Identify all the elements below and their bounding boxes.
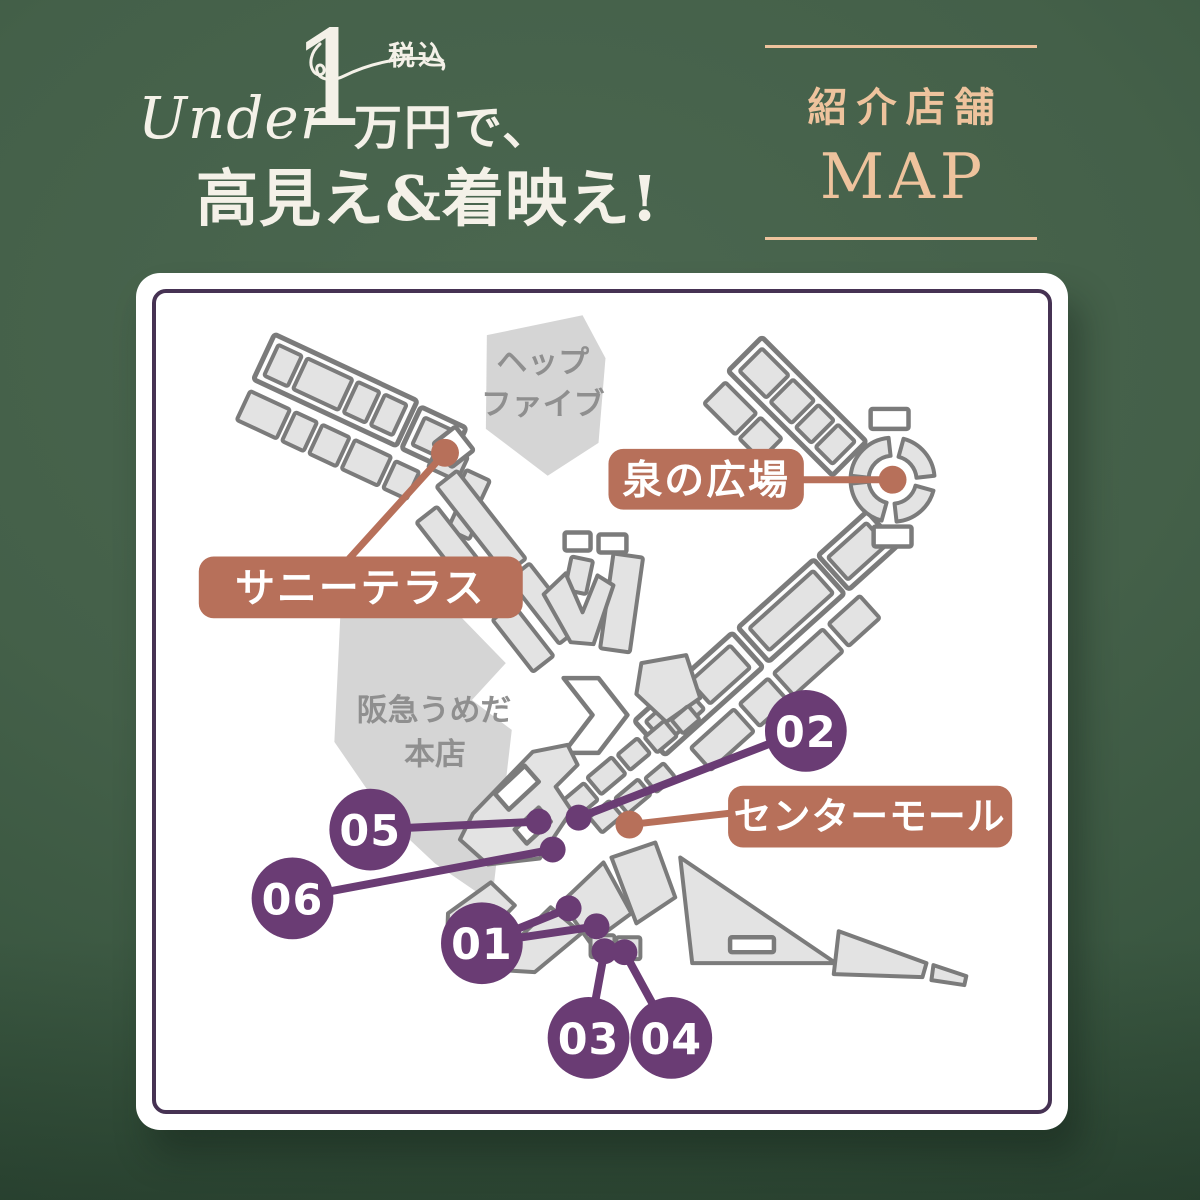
pin-06-number: 06	[262, 875, 324, 925]
page: { "title": { "under": "Under", "big_one"…	[0, 0, 1200, 1200]
sunny-terrace-dot	[431, 439, 459, 467]
izumi-plaza-label: 泉の広場	[622, 459, 789, 503]
umeda-underground-map: ヘップ ファイブ 阪急うめだ 本店	[136, 273, 1068, 1130]
tax-included-note: 税込	[388, 34, 448, 73]
pin-04-number: 04	[640, 1015, 702, 1065]
pin-01-number: 01	[451, 920, 513, 970]
center-mall-dot	[615, 811, 643, 839]
pin-05-number: 05	[339, 807, 401, 857]
hep-five-label-line2: ファイブ	[481, 386, 605, 421]
map-card: ヘップ ファイブ 阪急うめだ 本店	[136, 273, 1068, 1130]
intro-badge-map: MAP	[765, 140, 1037, 213]
pin-05: 05	[329, 789, 411, 871]
intro-map-badge: 紹介店舗 MAP	[765, 45, 1037, 240]
map-south-cluster	[447, 843, 966, 986]
pin-02: 02	[765, 690, 847, 772]
pin-06: 06	[252, 857, 334, 939]
pin-02-number: 02	[775, 708, 837, 758]
center-mall-label: センターモール	[734, 797, 1006, 839]
pin-01: 01	[441, 902, 523, 984]
intro-badge-text: 紹介店舗	[765, 75, 1037, 133]
hankyu-label-line1: 阪急うめだ	[357, 692, 512, 727]
title-line2: 高見え&着映え!	[196, 148, 659, 238]
place-label-center-mall: センターモール	[728, 786, 1012, 848]
hep-five-label-line1: ヘップ	[496, 345, 589, 380]
place-label-izumi-plaza: 泉の広場	[608, 449, 803, 510]
pin-04: 04	[630, 997, 712, 1079]
pin-03-number: 03	[558, 1015, 620, 1065]
pin-03: 03	[548, 997, 630, 1079]
izumi-plaza-dot	[879, 466, 907, 494]
hankyu-label-line2: 本店	[404, 736, 466, 771]
place-label-sunny-terrace: サニーテラス	[199, 556, 523, 618]
sunny-terrace-label: サニーテラス	[235, 566, 485, 610]
